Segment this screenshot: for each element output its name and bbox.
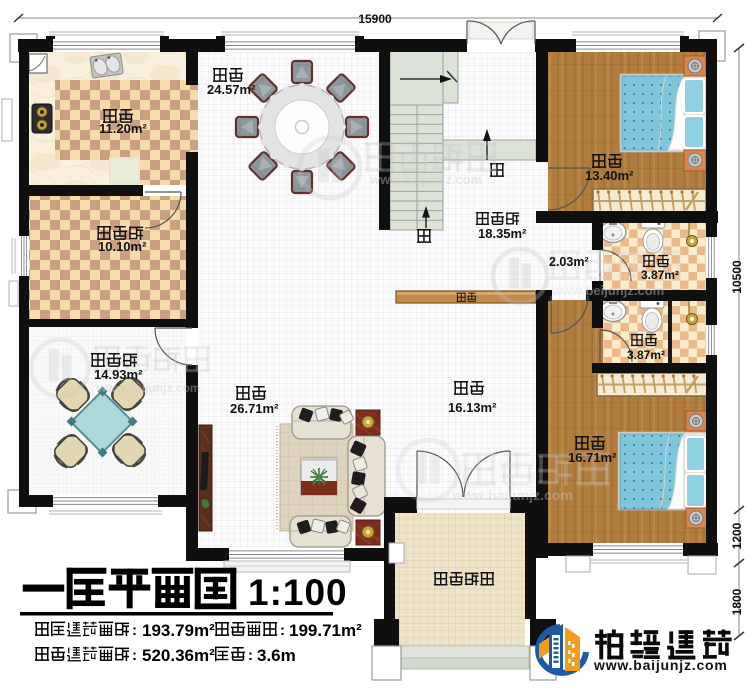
svg-text::: :: [280, 622, 285, 639]
svg-text::: :: [132, 622, 137, 639]
svg-text:www.baijunjz.com: www.baijunjz.com: [593, 657, 728, 673]
svg-text:193.79m²: 193.79m²: [142, 621, 215, 640]
svg-text:520.36m²: 520.36m²: [142, 646, 215, 665]
svg-text:26.71m²: 26.71m²: [230, 401, 279, 416]
svg-text:10.10m²: 10.10m²: [98, 239, 147, 254]
svg-text:11.20m²: 11.20m²: [99, 121, 147, 136]
svg-text:3.6m: 3.6m: [257, 646, 296, 665]
svg-text:14.93m²: 14.93m²: [94, 367, 143, 382]
svg-text:16.13m²: 16.13m²: [448, 400, 497, 415]
svg-text:10500: 10500: [730, 260, 744, 294]
svg-text:199.71m²: 199.71m²: [289, 621, 362, 640]
svg-text:www.baijunjz.com: www.baijunjz.com: [451, 487, 573, 503]
svg-text:3.87m²: 3.87m²: [641, 268, 679, 282]
svg-text:13.40m²: 13.40m²: [585, 168, 634, 183]
svg-text:www.beijunjz.com: www.beijunjz.com: [369, 172, 482, 187]
svg-text:1800: 1800: [730, 588, 744, 615]
svg-text:18.35m²: 18.35m²: [478, 226, 527, 241]
svg-text:3.87m²: 3.87m²: [627, 348, 665, 362]
svg-text:2.03m²: 2.03m²: [549, 255, 589, 269]
svg-text:16.71m²: 16.71m²: [568, 450, 617, 465]
svg-text:1200: 1200: [730, 522, 744, 549]
svg-text:www.beijunjz.com: www.beijunjz.com: [96, 381, 201, 395]
svg-text:24.57m²: 24.57m²: [207, 82, 256, 97]
svg-text:15900: 15900: [358, 12, 392, 26]
svg-text:www.beijunjz.com: www.beijunjz.com: [551, 283, 664, 298]
svg-text::: :: [132, 647, 137, 664]
svg-text::: :: [248, 647, 253, 664]
svg-text:1:100: 1:100: [248, 572, 348, 613]
